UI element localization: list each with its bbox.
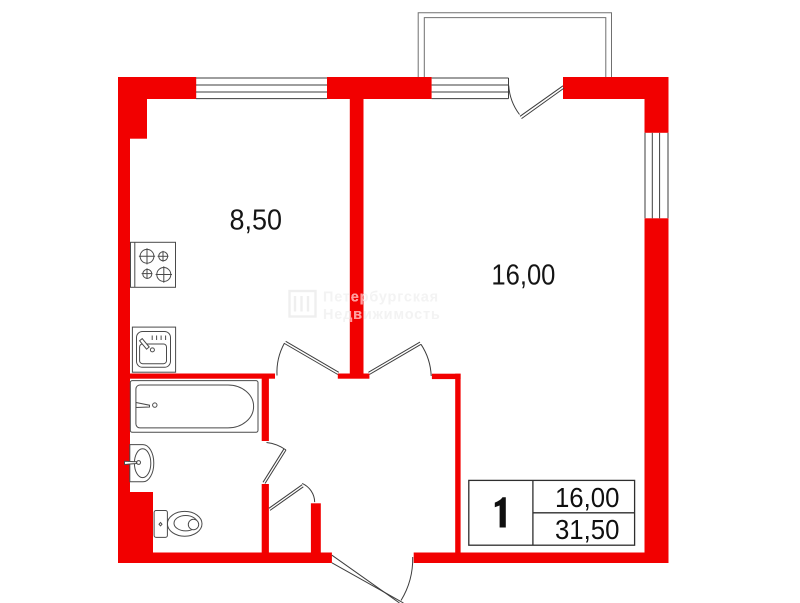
svg-text:31,50: 31,50	[555, 514, 620, 545]
svg-text:Петербургская: Петербургская	[323, 290, 439, 306]
svg-text:Недвижимость: Недвижимость	[323, 307, 441, 323]
svg-text:8,50: 8,50	[230, 204, 283, 236]
svg-text:16,00: 16,00	[491, 259, 555, 291]
svg-text:16,00: 16,00	[555, 482, 620, 513]
